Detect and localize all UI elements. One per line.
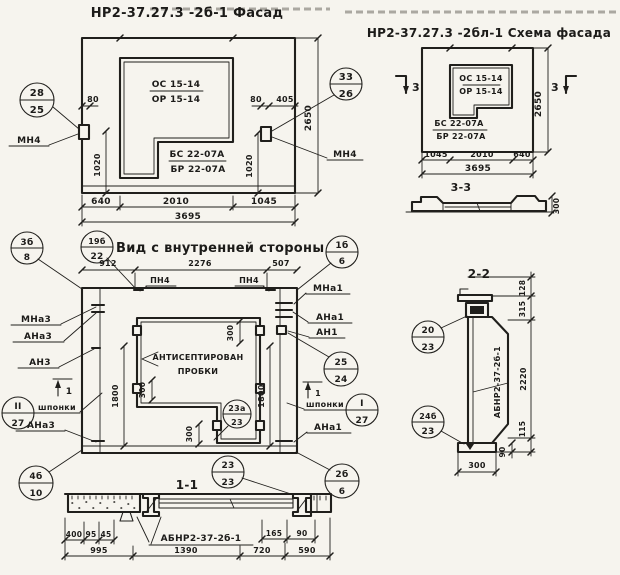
callout-19b-22-num: 19б	[88, 236, 106, 246]
facade-dim-2010: 2010	[163, 197, 189, 207]
internal-window-plug-5	[213, 421, 221, 430]
callout-4b-10: 4б 10	[19, 450, 82, 500]
callout-23-23-leader	[242, 478, 291, 494]
callout-20-23-num: 20	[421, 326, 434, 336]
section-3-3-title: 3-3	[451, 181, 472, 194]
section-1-1-dim-90: 90	[296, 529, 307, 538]
callout-20-23-sheet: 23	[421, 343, 434, 353]
callout-I-27-num: I	[360, 399, 364, 409]
scheme-section-mark-left-line	[396, 76, 406, 93]
section-1-1-right-block-lines	[314, 494, 326, 512]
internal-dim-300-left: 300	[138, 382, 147, 399]
callout-4b-10-num: 4б	[29, 471, 42, 482]
section-1-1-slab-lines	[159, 499, 293, 508]
callout-24b-23-leader	[441, 431, 464, 444]
facade-dim-80-right: 80	[250, 95, 262, 104]
internal-label-an1: АН1	[316, 328, 338, 338]
internal-section-mark-1-left-arrow	[55, 380, 61, 388]
section-1-1-left-block-hook	[120, 512, 133, 521]
callout-23-23: 23 23	[212, 456, 291, 494]
callout-33-26-sheet: 26	[339, 89, 354, 100]
facade-sill-mark-top: БС 22-07А	[169, 150, 224, 160]
facade-view: НР2-37.27.3 -2б-1 Фасад ОС 15-14 ОР 15-1…	[9, 6, 363, 226]
internal-label-mna3: МНа3	[21, 315, 51, 325]
section-2-2-top-flange	[458, 295, 492, 301]
callout-II-27-num: II	[14, 402, 21, 412]
callout-33-26-num: 33	[339, 72, 354, 83]
callout-25-24-num: 25	[334, 358, 347, 368]
scheme-section-mark-left-label: 3	[412, 81, 420, 94]
facade-dim-640: 640	[91, 197, 111, 207]
internal-window-plug-1	[133, 326, 141, 335]
internal-label-mna1-leader	[294, 293, 350, 304]
scheme-section-mark-right-line	[566, 76, 576, 93]
internal-label-ana3-bottom-leader	[16, 430, 96, 442]
section-1-1-left-block	[68, 494, 140, 512]
section-2-2-dim-128: 128	[518, 280, 527, 297]
callout-I-27: I 27	[346, 394, 378, 426]
internal-window-plug-2	[256, 326, 264, 335]
section-2-2-dim-90: 90	[498, 446, 507, 457]
facade-anchor-left-label: МН4	[17, 136, 41, 146]
internal-view-title: Вид с внутренней стороны	[116, 241, 324, 256]
facade-dimension-ticks	[79, 35, 321, 225]
internal-label-shponki-left: шпонки	[38, 403, 76, 412]
callout-I-27-sheet: 27	[355, 416, 368, 426]
internal-section-mark-1-right-arrow	[305, 382, 311, 390]
internal-right-embed-plate	[277, 326, 286, 334]
section-1-1-product-mark: АБНР2-37-2б-1	[161, 533, 242, 544]
section-2-2-title: 2-2	[468, 267, 491, 281]
facade-title: НР2-37.27.3 -2б-1 Фасад	[91, 6, 284, 21]
internal-label-shponki-right: шпонки	[306, 400, 344, 409]
scheme-sill-mark-bottom: БР 22-07А	[436, 132, 486, 141]
facade-window-mark-bottom: ОР 15-14	[152, 95, 201, 105]
callout-II-27-sheet: 27	[11, 419, 24, 429]
facade-dim-2650: 2650	[304, 105, 314, 131]
facade-dim-405: 405	[276, 95, 294, 104]
callout-23-23-sheet: 23	[221, 478, 234, 488]
facade-dim-80-left: 80	[87, 95, 99, 104]
scheme-sill-mark-top: БС 22-07А	[434, 119, 484, 128]
scheme-dim-1045: 1045	[424, 150, 448, 159]
internal-dim-1800-right: 1800	[257, 384, 266, 408]
section-1-1-dim-400: 400	[66, 530, 83, 539]
section-2-2-head-fill	[470, 306, 484, 314]
facade-window-mark-top: ОС 15-14	[152, 80, 201, 90]
section-1-1-dim-995: 995	[90, 546, 108, 555]
internal-note-line2: ПРОБКИ	[178, 367, 219, 376]
facade-dimension-lines	[82, 38, 318, 226]
facade-anchor-right-label: МН4	[333, 150, 357, 160]
callout-1b-6-sheet: 6	[339, 257, 346, 267]
section-1-1-dim-1390: 1390	[174, 546, 198, 555]
internal-dim-912: 912	[99, 259, 117, 268]
internal-dim-300-bottom: 300	[185, 426, 194, 443]
callout-25-24-sheet: 24	[334, 375, 347, 385]
callout-4b-10-sheet: 10	[29, 489, 42, 499]
facade-window-opening	[120, 58, 233, 178]
callout-1b-6-num: 1б	[335, 240, 348, 251]
section-1-1-dim-45: 45	[100, 530, 111, 539]
callout-3b-8-num: 3б	[20, 237, 33, 248]
callout-3b-8-sheet: 8	[24, 253, 31, 263]
internal-anchor-pn4-left: ПН4	[150, 276, 170, 285]
callout-3b-8-leader	[38, 259, 82, 289]
scheme-dim-2650: 2650	[534, 91, 544, 117]
internal-view: Вид с внутренней стороны 3б 8 19б 22 912…	[2, 231, 378, 500]
facade-dim-3695: 3695	[175, 212, 201, 222]
section-1-1-slab	[159, 499, 293, 508]
callout-2b-6: 2б 6	[296, 452, 359, 498]
internal-note-line1: АНТИСЕПТИРОВАН	[152, 353, 243, 362]
internal-anchor-pn4-right: ПН4	[239, 276, 259, 285]
scheme-dim-3695: 3695	[465, 164, 491, 174]
internal-right-embed-marks	[276, 303, 292, 441]
callout-2b-6-leader	[296, 452, 330, 470]
callout-20-23: 20 23	[412, 316, 467, 353]
callout-28-25-num: 28	[30, 88, 45, 99]
internal-section-mark-1-right-label: 1	[315, 389, 321, 398]
section-2-2-dim-315: 315	[518, 301, 527, 318]
section-2-2-product-mark: АБНР2-37-2б-1	[492, 346, 502, 418]
section-2-2-dim-115: 115	[518, 421, 527, 438]
internal-label-ana3-top: АНа3	[24, 332, 52, 342]
internal-shponki-left-leader	[80, 393, 102, 412]
drawing-sheet: НР2-37.27.3 -2б-1 Фасад ОС 15-14 ОР 15-1…	[0, 0, 620, 575]
callout-28-25-sheet: 25	[30, 105, 45, 116]
callout-28-25-leader	[53, 107, 79, 129]
section-1-1-dim-95: 95	[85, 530, 96, 539]
scheme-dim-640: 640	[513, 150, 531, 159]
callout-2b-6-num: 2б	[335, 469, 348, 480]
callout-24b-23: 24б 23	[412, 406, 464, 444]
facade-embed-right	[261, 127, 271, 141]
section-2-2-body-lines	[473, 317, 508, 443]
callout-28-25: 28 25	[20, 83, 79, 129]
callout-25-24: 25 24	[288, 333, 358, 386]
internal-label-ana1-top: АНа1	[316, 313, 344, 323]
section-2-2-bottom-cap	[458, 443, 496, 452]
scheme-section-mark-left-arrow	[403, 86, 409, 94]
internal-dim-1800-left: 1800	[111, 384, 120, 408]
callout-23a-23-num: 23а	[228, 404, 245, 413]
section-1-1-title: 1-1	[176, 478, 199, 492]
callout-3b-8: 3б 8	[11, 232, 82, 289]
section-1-1-left-block-hatch	[72, 496, 132, 499]
callout-24b-23-sheet: 23	[421, 427, 434, 437]
technical-drawing-canvas: НР2-37.27.3 -2б-1 Фасад ОС 15-14 ОР 15-1…	[0, 0, 620, 575]
facade-scheme-view: НР2-37.27.3 -2бл-1 Схема фасада ОС 15-14…	[367, 26, 611, 178]
internal-dim-2276: 2276	[188, 259, 212, 268]
section-2-2-bottom-wedge	[466, 444, 474, 450]
section-2-2-view: 2-2 АБНР2-37-2б-1 20 23 24б 23 128 315 2…	[412, 267, 535, 476]
callout-23-23-num: 23	[221, 461, 234, 471]
callout-24b-23-num: 24б	[419, 411, 437, 421]
section-3-3-dim-300: 300	[552, 198, 561, 215]
callout-4b-10-leader	[49, 450, 82, 472]
scheme-section-mark-right-arrow	[563, 86, 569, 94]
internal-left-embed-marks	[92, 305, 104, 441]
section-2-2-dim-2220: 2220	[519, 367, 528, 391]
scheme-window-mark-bottom: ОР 15-14	[459, 87, 503, 96]
internal-label-an3: АН3	[29, 358, 51, 368]
facade-dim-1020-right: 1020	[245, 154, 254, 178]
callout-20-23-leader	[441, 316, 467, 328]
section-1-1-view: 23 23 1-1 АБНР2-37-2б-1 400 95 45 165 90…	[62, 456, 333, 560]
section-3-3-view: 3-3 300	[406, 181, 561, 216]
internal-label-mna1: МНа1	[313, 284, 343, 294]
section-1-1-dim-590: 590	[298, 546, 316, 555]
facade-sill-mark-bottom: БР 22-07А	[170, 165, 225, 175]
internal-dim-507: 507	[272, 259, 290, 268]
scheme-section-mark-right-label: 3	[551, 81, 559, 94]
section-1-1-concrete-dots	[72, 502, 135, 508]
section-2-2-dim-300: 300	[468, 461, 486, 470]
internal-section-mark-1-left-label: 1	[66, 387, 73, 397]
internal-label-ana1-bottom-leader	[294, 432, 351, 442]
callout-23a-23-sheet: 23	[231, 418, 243, 427]
section-2-2-body	[468, 317, 508, 443]
internal-label-ana1-bottom: АНа1	[314, 423, 342, 433]
internal-window-plug-6	[256, 421, 264, 430]
internal-label-ana3-bottom: АНа3	[27, 421, 55, 431]
facade-embed-left	[79, 125, 89, 139]
section-1-1-dim-165: 165	[266, 529, 283, 538]
facade-dim-1045: 1045	[251, 197, 277, 207]
scheme-dim-2010: 2010	[470, 150, 494, 159]
section-1-1-dim-720: 720	[253, 546, 271, 555]
scheme-title: НР2-37.27.3 -2бл-1 Схема фасада	[367, 26, 611, 40]
callout-2b-6-sheet: 6	[339, 487, 346, 497]
internal-dim-300-top: 300	[226, 325, 235, 342]
facade-dim-1020-left: 1020	[93, 153, 102, 177]
scheme-window-mark-top: ОС 15-14	[459, 74, 503, 83]
